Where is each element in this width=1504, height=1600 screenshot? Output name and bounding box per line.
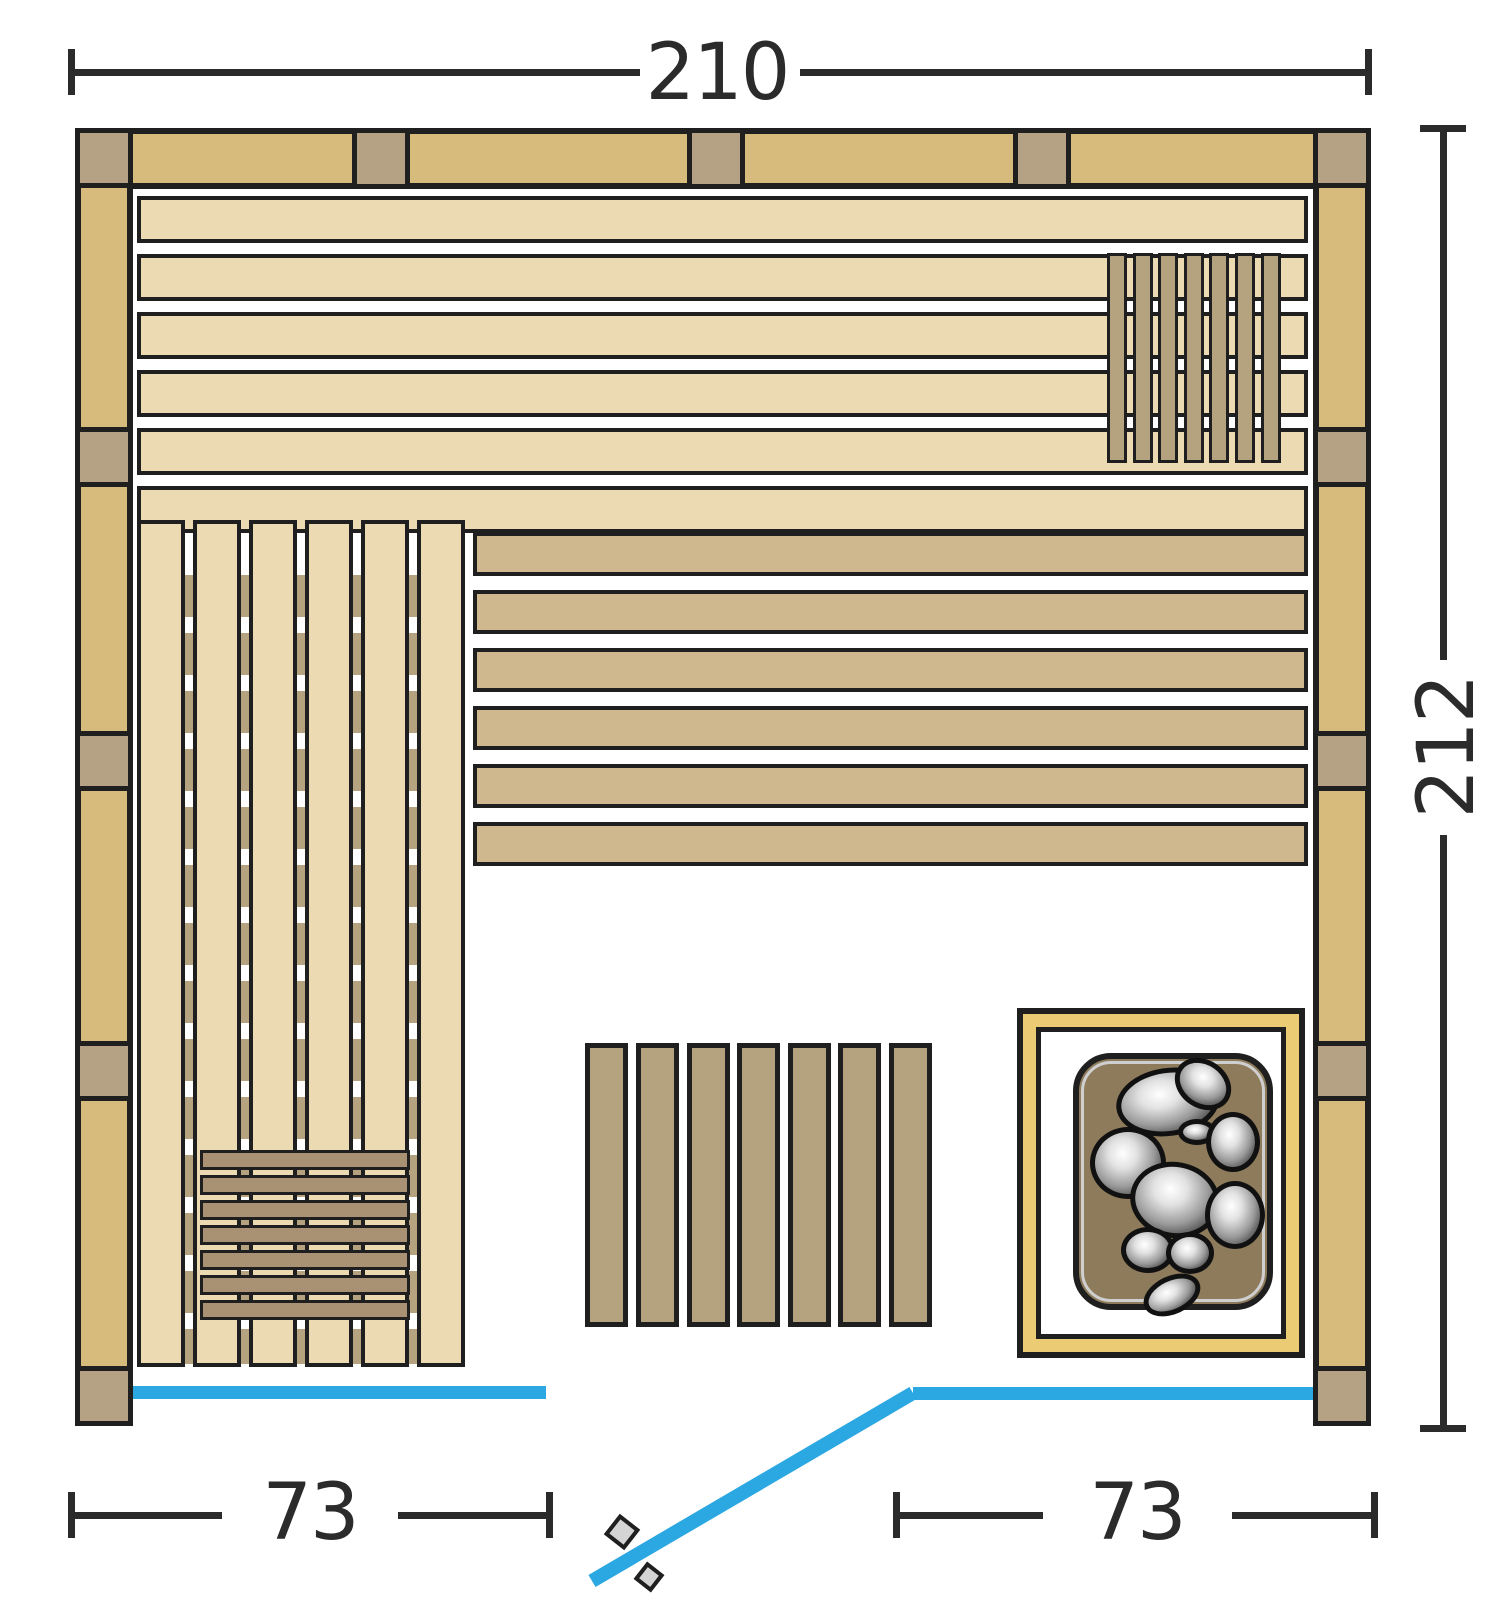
- glass-door-svg: [0, 0, 1504, 1600]
- glass-door-open-line: [592, 1393, 913, 1581]
- sauna-floorplan-canvas: 210 212 73 73: [0, 0, 1504, 1600]
